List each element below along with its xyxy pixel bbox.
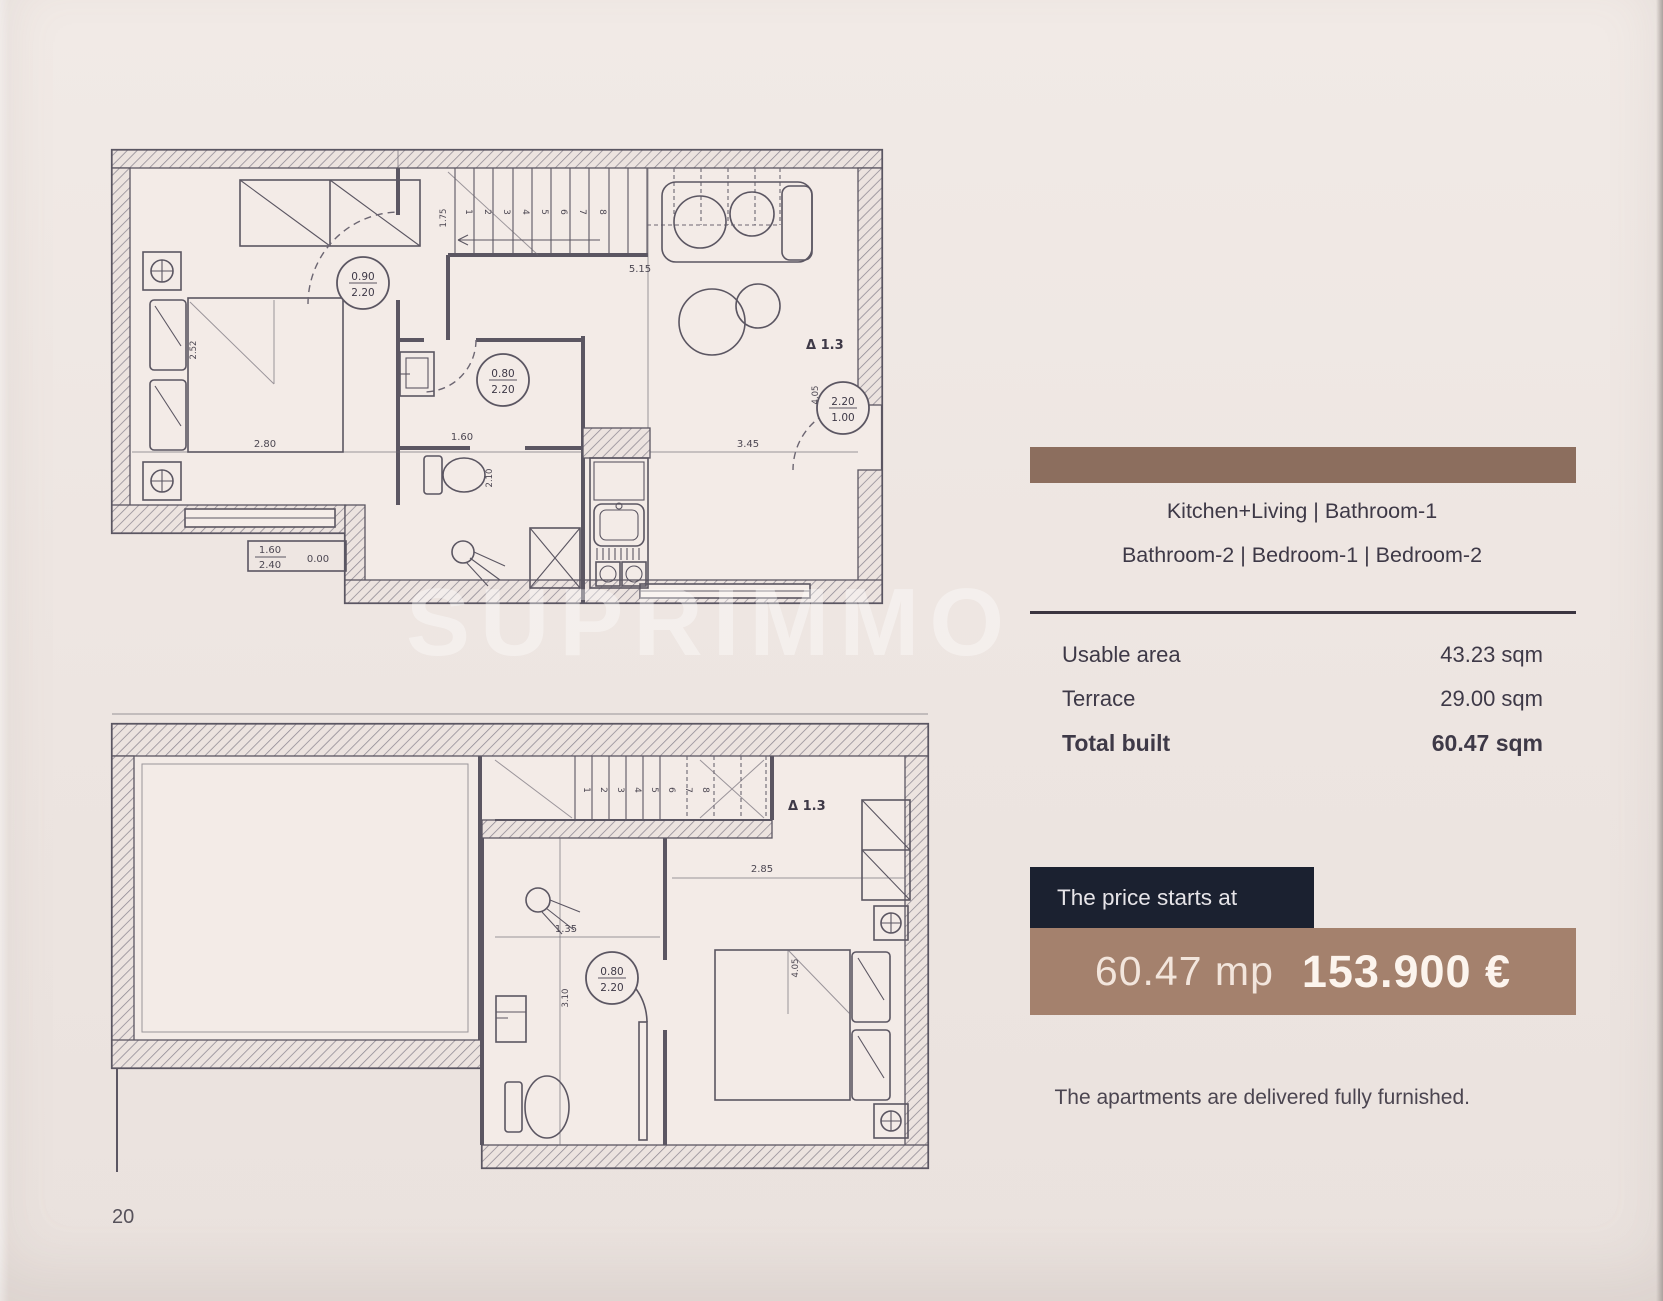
svg-text:2.80: 2.80 bbox=[254, 439, 276, 450]
floor-plan-lower: 1 2 3 4 5 6 7 8 1.35 3.10 0.80 2.20 bbox=[95, 675, 935, 1180]
svg-text:1: 1 bbox=[581, 787, 591, 793]
table-row-total: Total built 60.47 sqm bbox=[1030, 721, 1576, 765]
svg-text:4: 4 bbox=[520, 209, 530, 215]
svg-text:1.00: 1.00 bbox=[831, 412, 854, 424]
area-value: 29.00 sqm bbox=[1440, 686, 1543, 712]
table-row: Terrace 29.00 sqm bbox=[1030, 677, 1576, 721]
svg-text:2.20: 2.20 bbox=[351, 287, 374, 299]
svg-text:0.00: 0.00 bbox=[307, 554, 329, 565]
svg-text:4: 4 bbox=[632, 787, 642, 793]
svg-text:4.05: 4.05 bbox=[811, 386, 821, 405]
svg-text:6: 6 bbox=[558, 209, 568, 215]
area-label: Usable area bbox=[1062, 642, 1181, 668]
svg-text:5.15: 5.15 bbox=[629, 264, 651, 275]
svg-text:0.90: 0.90 bbox=[351, 271, 374, 283]
svg-text:5: 5 bbox=[649, 787, 659, 793]
room-list: Kitchen+Living | Bathroom-1 Bathroom-2 |… bbox=[1022, 489, 1582, 577]
level-marker-lower: Δ 1.3 bbox=[788, 799, 826, 814]
price-amount: 153.900 € bbox=[1302, 946, 1511, 998]
svg-text:1.60: 1.60 bbox=[451, 432, 473, 443]
svg-text:1.35: 1.35 bbox=[555, 924, 577, 935]
svg-text:2.10: 2.10 bbox=[485, 469, 495, 488]
page-edge-right bbox=[1656, 0, 1663, 1301]
table-row: Usable area 43.23 sqm bbox=[1030, 633, 1576, 677]
svg-text:8: 8 bbox=[700, 787, 710, 793]
svg-text:2.40: 2.40 bbox=[259, 560, 281, 571]
svg-text:3: 3 bbox=[615, 787, 625, 793]
price-intro-text: The price starts at bbox=[1057, 885, 1237, 911]
svg-text:0.80: 0.80 bbox=[600, 966, 623, 978]
svg-text:4.05: 4.05 bbox=[791, 959, 801, 978]
svg-text:0.80: 0.80 bbox=[491, 368, 514, 380]
area-value: 43.23 sqm bbox=[1440, 642, 1543, 668]
area-label: Terrace bbox=[1062, 686, 1135, 712]
lower-floor-outline bbox=[112, 714, 928, 1172]
svg-text:6: 6 bbox=[666, 787, 676, 793]
area-table: Usable area 43.23 sqm Terrace 29.00 sqm … bbox=[1030, 633, 1576, 765]
page-number: 20 bbox=[112, 1206, 134, 1229]
svg-text:3: 3 bbox=[501, 209, 511, 215]
svg-text:1: 1 bbox=[463, 209, 473, 215]
svg-text:5: 5 bbox=[539, 209, 549, 215]
panel-divider bbox=[1030, 611, 1576, 614]
svg-text:1.60: 1.60 bbox=[259, 545, 281, 556]
svg-text:7: 7 bbox=[683, 787, 693, 793]
room-list-line1: Kitchen+Living | Bathroom-1 bbox=[1022, 489, 1582, 533]
floor-plan-upper: 1 2 3 4 5 6 7 8 0.90 2.20 bbox=[100, 145, 895, 610]
level-marker-upper: Δ 1.3 bbox=[806, 338, 844, 353]
svg-text:2: 2 bbox=[482, 209, 492, 215]
price-size: 60.47 mp bbox=[1095, 948, 1274, 995]
elevation-box-upper: 1.60 2.40 0.00 bbox=[248, 541, 346, 571]
svg-text:1.75: 1.75 bbox=[439, 209, 449, 228]
svg-text:3.10: 3.10 bbox=[561, 989, 571, 1008]
page-edge-left bbox=[0, 0, 9, 1301]
svg-text:2: 2 bbox=[598, 787, 608, 793]
area-label: Total built bbox=[1062, 730, 1170, 757]
room-list-line2: Bathroom-2 | Bedroom-1 | Bedroom-2 bbox=[1022, 533, 1582, 577]
svg-text:7: 7 bbox=[577, 209, 587, 215]
svg-text:8: 8 bbox=[597, 209, 607, 215]
svg-text:3.45: 3.45 bbox=[737, 439, 759, 450]
area-value: 60.47 sqm bbox=[1432, 730, 1543, 757]
furnished-note: The apartments are delivered fully furni… bbox=[1030, 1086, 1470, 1110]
svg-text:2.20: 2.20 bbox=[600, 982, 623, 994]
svg-text:2.85: 2.85 bbox=[751, 864, 773, 875]
price-intro-tag: The price starts at bbox=[1030, 867, 1314, 928]
svg-text:2.20: 2.20 bbox=[491, 384, 514, 396]
price-band: 60.47 mp 153.900 € bbox=[1030, 928, 1576, 1015]
svg-text:2.52: 2.52 bbox=[189, 341, 199, 360]
svg-text:2.20: 2.20 bbox=[831, 396, 854, 408]
accent-bar bbox=[1030, 447, 1576, 483]
